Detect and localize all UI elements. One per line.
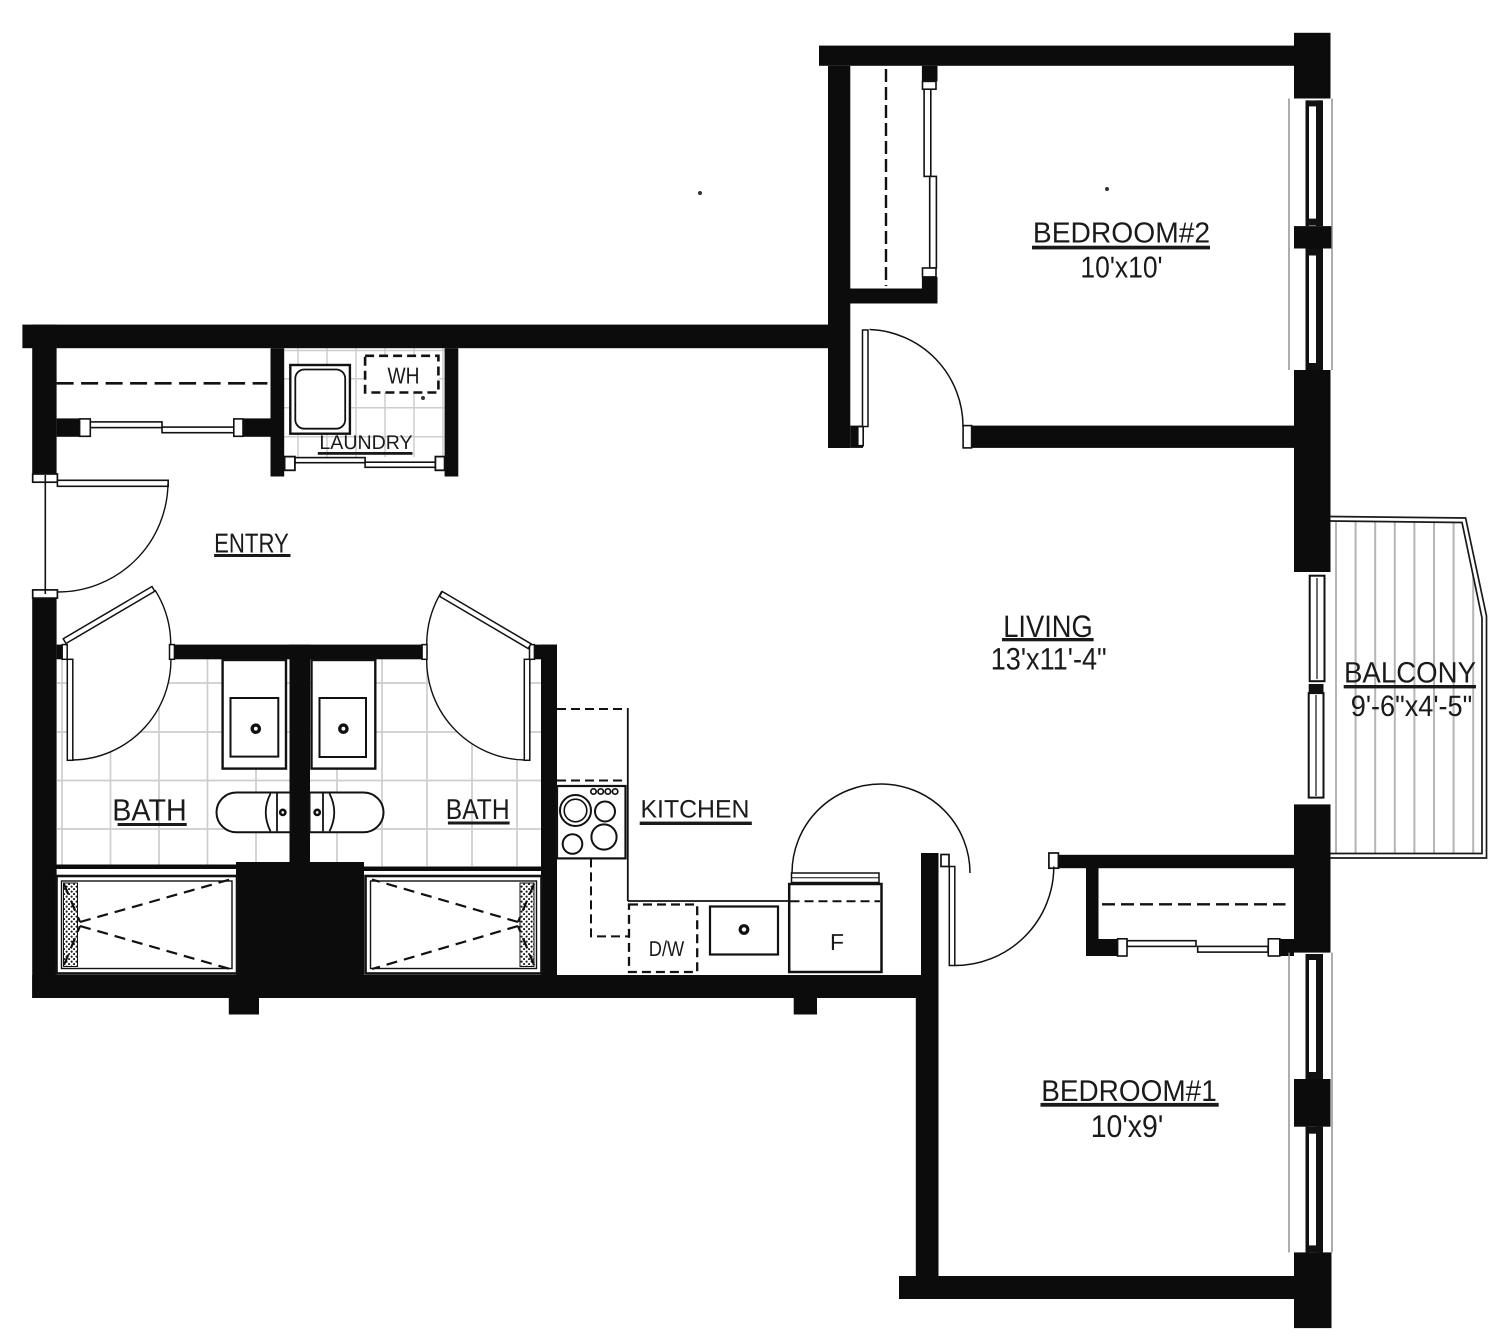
svg-text:10'x10': 10'x10' xyxy=(1080,252,1162,285)
svg-text:KITCHEN: KITCHEN xyxy=(641,795,750,823)
svg-text:9'-6"x4'-5": 9'-6"x4'-5" xyxy=(1351,690,1473,723)
svg-text:F: F xyxy=(830,929,844,955)
svg-text:D/W: D/W xyxy=(649,937,685,961)
svg-text:BALCONY: BALCONY xyxy=(1344,657,1476,690)
svg-text:BEDROOM#2: BEDROOM#2 xyxy=(1033,218,1210,250)
svg-text:ENTRY: ENTRY xyxy=(214,527,289,558)
svg-text:LAUNDRY: LAUNDRY xyxy=(319,432,412,454)
svg-text:WH: WH xyxy=(388,363,420,389)
svg-text:13'x11'-4": 13'x11'-4" xyxy=(991,642,1107,677)
svg-text:10'x9': 10'x9' xyxy=(1091,1108,1164,1144)
svg-text:BATH: BATH xyxy=(446,794,510,826)
svg-text:BATH: BATH xyxy=(112,792,186,827)
